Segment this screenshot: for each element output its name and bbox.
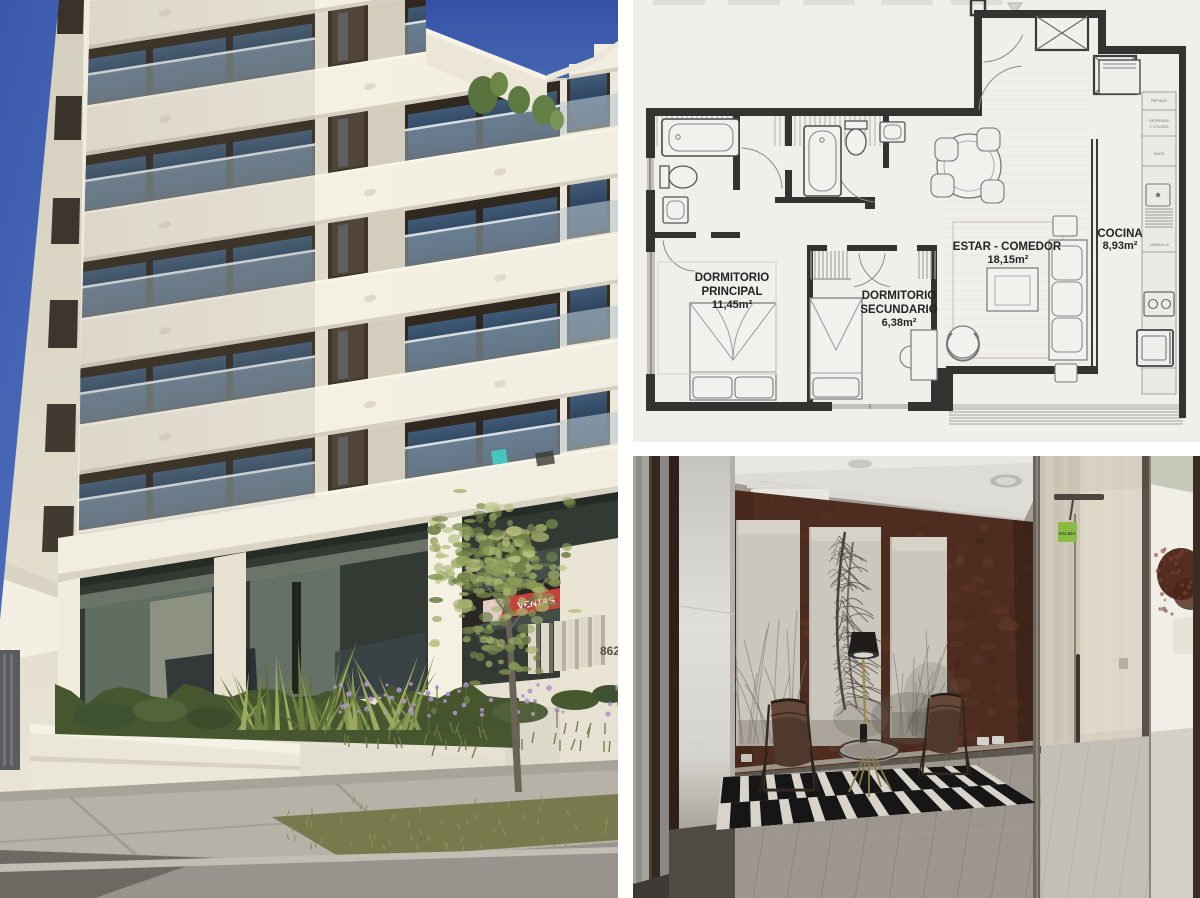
svg-text:DESPENSA: DESPENSA xyxy=(1149,119,1169,123)
svg-text:8,93m²: 8,93m² xyxy=(1103,240,1138,252)
svg-text:11,45m²: 11,45m² xyxy=(712,299,753,311)
svg-text:DORMITORIO: DORMITORIO xyxy=(862,290,937,302)
svg-text:LAVAVAJILLA: LAVAVAJILLA xyxy=(1149,243,1169,247)
svg-text:18,15m²: 18,15m² xyxy=(988,254,1029,266)
svg-text:ESTAR - COMEDOR: ESTAR - COMEDOR xyxy=(953,241,1062,253)
svg-text:DORMITORIO: DORMITORIO xyxy=(695,272,770,284)
svg-text:SECUNDARIO: SECUNDARIO xyxy=(860,304,937,316)
svg-text:SALIDA: SALIDA xyxy=(1059,531,1077,536)
svg-text:REPISAS: REPISAS xyxy=(1151,99,1167,103)
svg-text:PRINCIPAL: PRINCIPAL xyxy=(701,286,762,298)
svg-text:COCINA: COCINA xyxy=(1097,228,1142,240)
svg-text:Y UTILERO: Y UTILERO xyxy=(1150,125,1169,129)
svg-text:862: 862 xyxy=(600,644,618,658)
svg-text:6,38m²: 6,38m² xyxy=(882,317,917,329)
svg-text:RACK: RACK xyxy=(1154,152,1165,156)
